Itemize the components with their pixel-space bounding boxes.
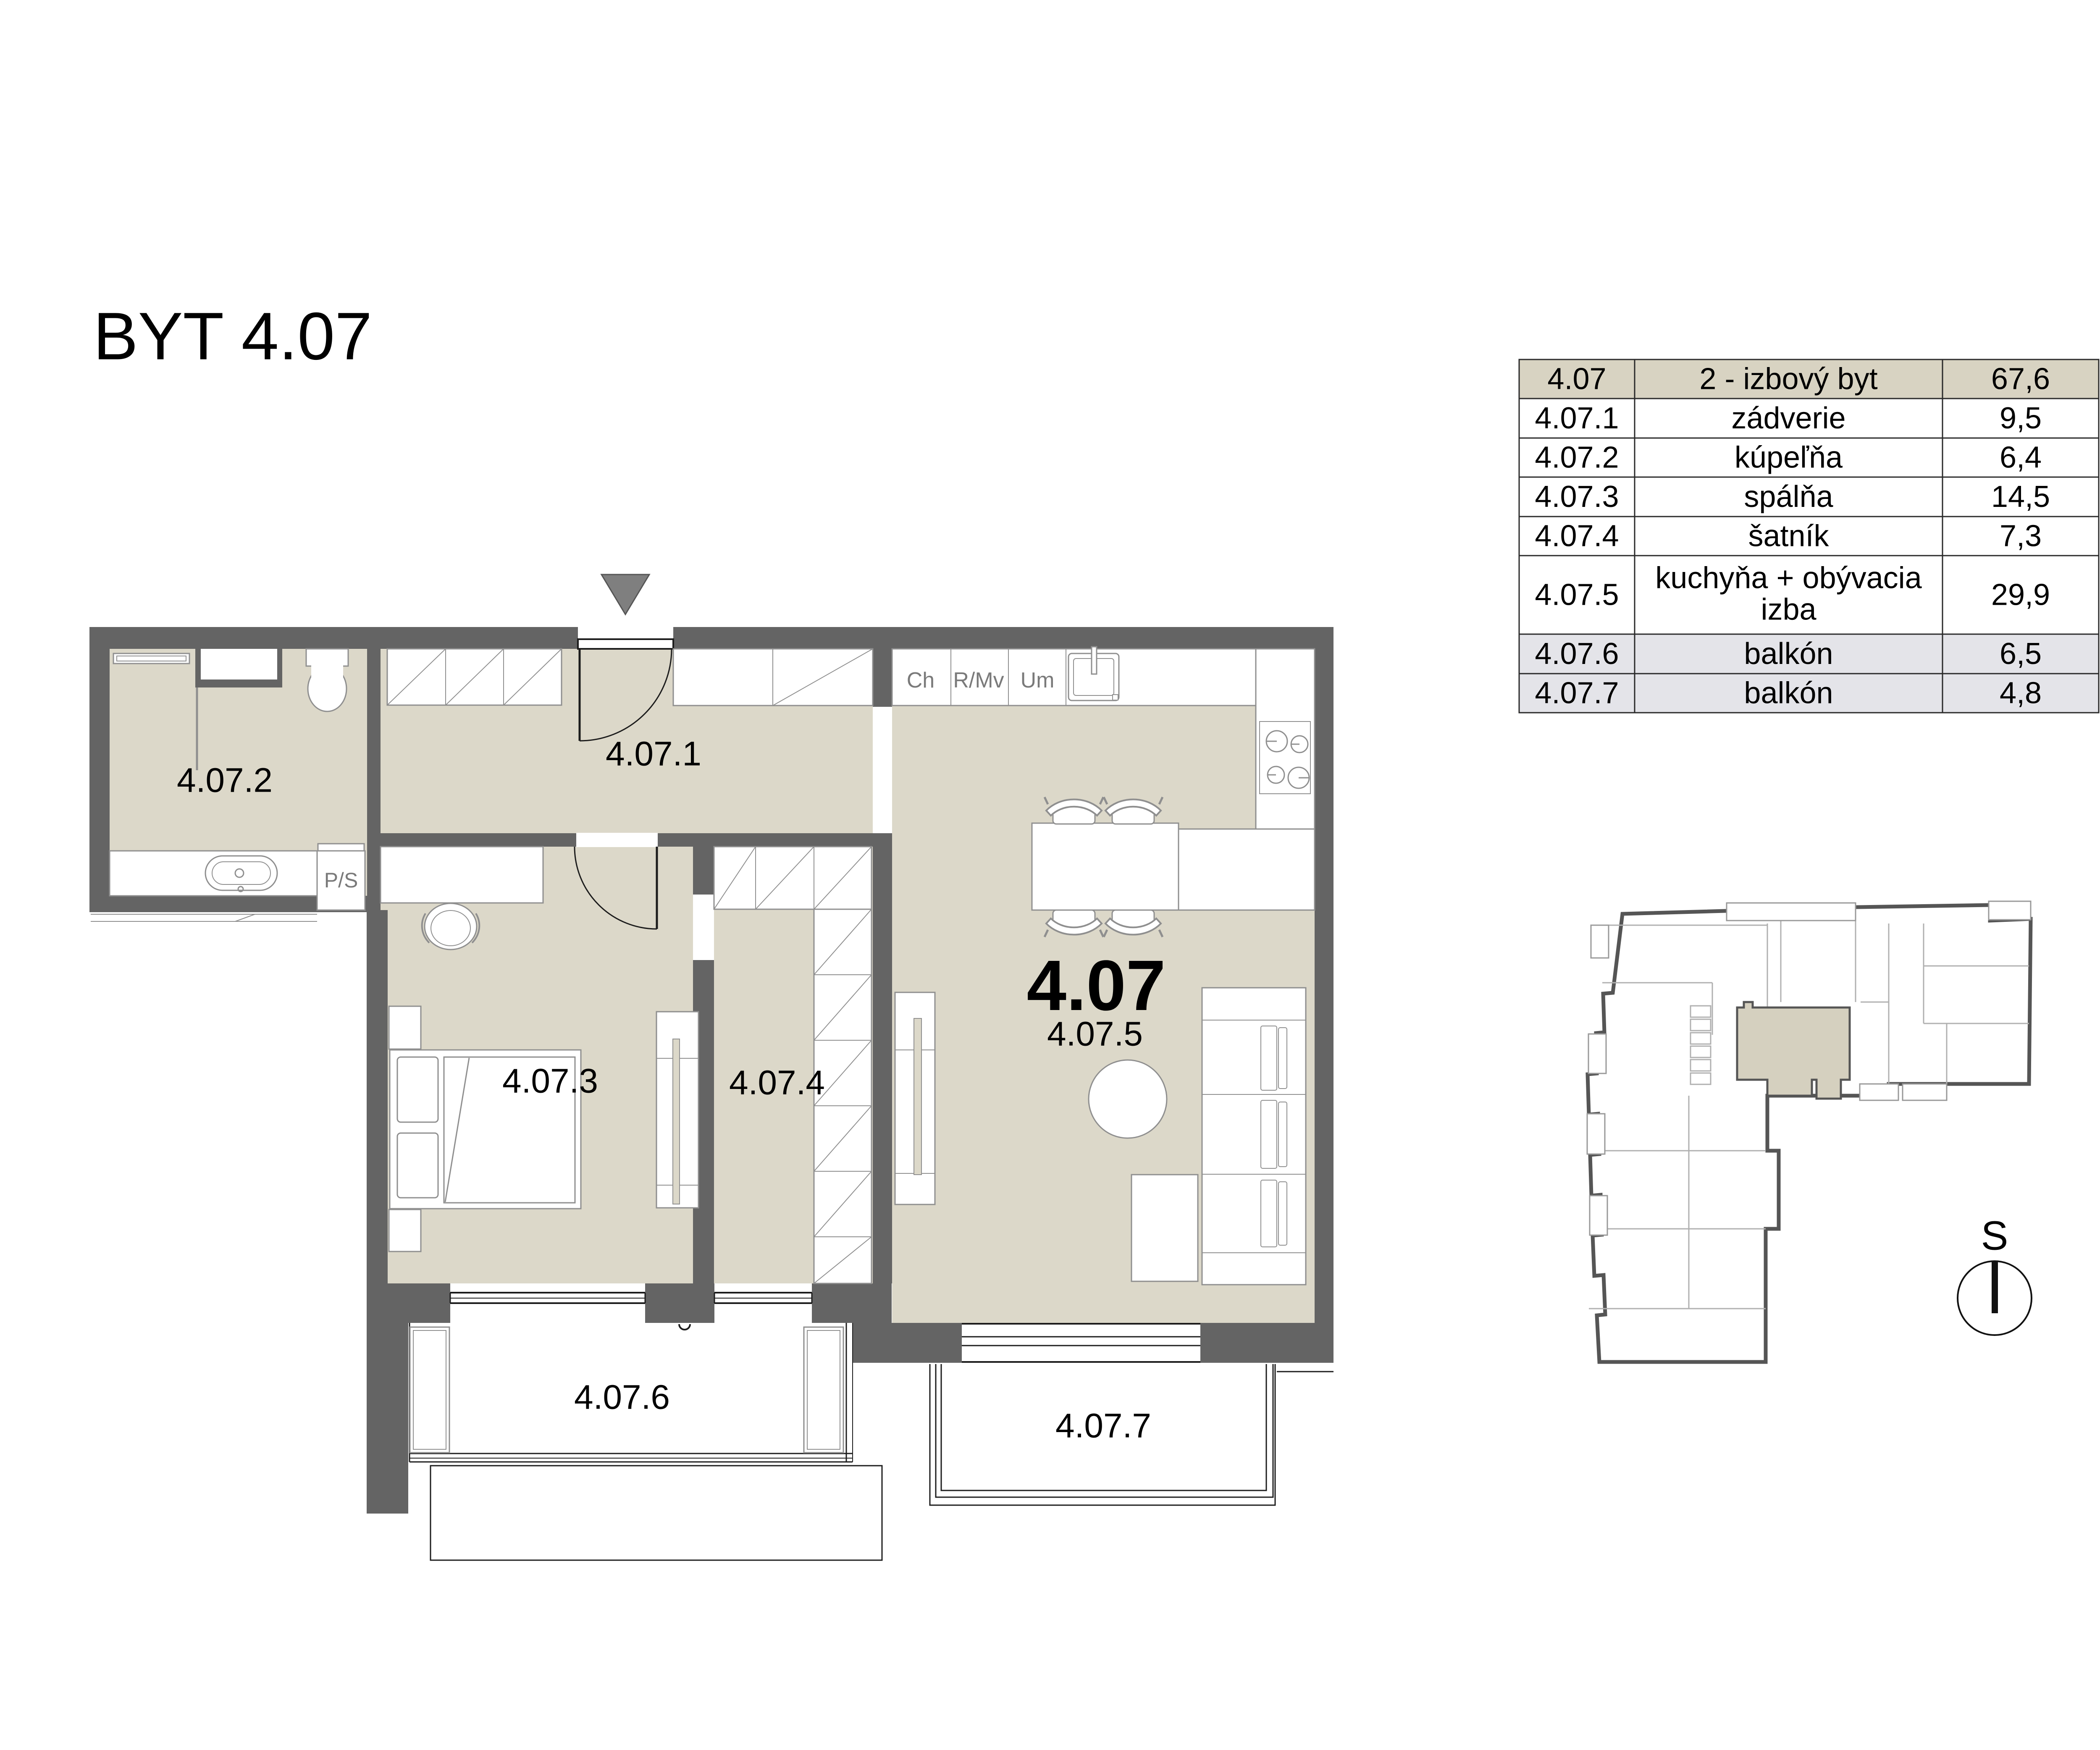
svg-text:zádverie: zádverie [1731,401,1845,435]
svg-text:4,8: 4,8 [2000,677,2042,710]
svg-text:S: S [1981,1213,2008,1259]
svg-text:4.07.5: 4.07.5 [1535,578,1619,612]
svg-text:balkón: balkón [1744,677,1833,710]
svg-text:4.07.7: 4.07.7 [1055,1407,1151,1445]
svg-text:4.07.1: 4.07.1 [1535,401,1619,435]
svg-text:P/S: P/S [324,868,358,892]
svg-text:izba: izba [1761,593,1816,627]
svg-text:4.07.6: 4.07.6 [1535,637,1619,671]
svg-text:balkón: balkón [1744,637,1833,671]
svg-text:4.07.2: 4.07.2 [1535,441,1619,475]
svg-text:4.07.2: 4.07.2 [177,761,273,800]
svg-text:2 - izbový byt: 2 - izbový byt [1699,362,1877,396]
svg-text:šatník: šatník [1748,519,1829,553]
svg-text:6,4: 6,4 [2000,441,2042,475]
svg-text:29,9: 29,9 [1991,578,2050,612]
svg-text:4.07.6: 4.07.6 [574,1378,670,1417]
svg-text:7,3: 7,3 [2000,519,2042,553]
svg-text:14,5: 14,5 [1991,480,2050,514]
svg-text:R/Mv: R/Mv [953,668,1004,693]
svg-text:BYT 4.07: BYT 4.07 [93,299,372,374]
svg-text:9,5: 9,5 [2000,401,2042,435]
svg-text:Um: Um [1021,668,1055,693]
svg-text:6,5: 6,5 [2000,637,2042,671]
svg-text:67,6: 67,6 [1991,362,2050,396]
svg-text:spálňa: spálňa [1744,480,1833,514]
svg-text:4.07.1: 4.07.1 [606,735,701,773]
svg-text:4.07.4: 4.07.4 [729,1064,825,1102]
svg-text:kuchyňa + obývacia: kuchyňa + obývacia [1655,561,1922,595]
svg-text:kúpeľňa: kúpeľňa [1735,441,1843,475]
svg-text:Ch: Ch [907,668,934,693]
svg-text:4.07.3: 4.07.3 [502,1062,598,1100]
svg-text:4.07.3: 4.07.3 [1535,480,1619,514]
svg-text:4.07: 4.07 [1027,946,1166,1026]
svg-text:4.07.4: 4.07.4 [1535,519,1619,553]
svg-text:4.07.5: 4.07.5 [1047,1015,1143,1053]
svg-text:4.07.7: 4.07.7 [1535,677,1619,710]
svg-text:4.07: 4.07 [1547,362,1606,396]
